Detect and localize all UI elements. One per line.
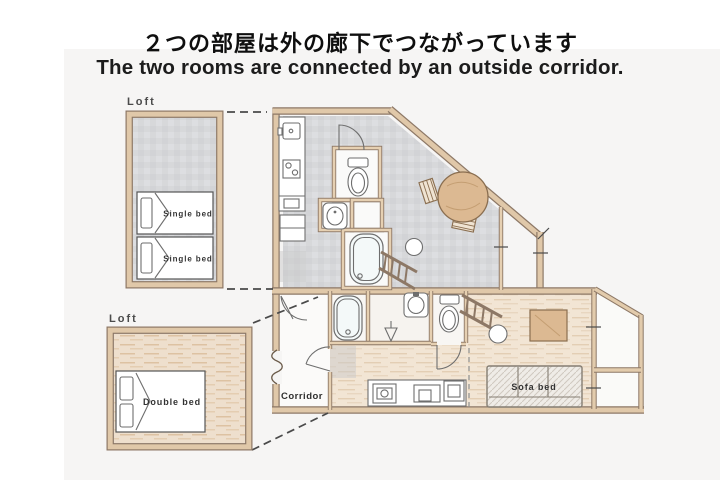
coffee-table	[530, 310, 567, 341]
connector-dash	[252, 413, 328, 450]
upper-loft-label: Loft	[127, 96, 156, 108]
storage-floor-upper	[352, 201, 380, 228]
washbasin-upper	[323, 203, 347, 229]
floor-mat-upper	[278, 251, 306, 282]
tap-dot	[334, 211, 337, 214]
double-bed: Double bed	[116, 371, 205, 432]
tap-icon	[413, 292, 419, 296]
bathtub-upper	[350, 234, 383, 284]
floor-mat-lower	[330, 346, 356, 378]
square-table-icon	[530, 310, 567, 341]
single-bed-2: Single bed	[137, 237, 213, 279]
lower-loft-label: Loft	[109, 313, 138, 325]
balcony-floor	[596, 291, 641, 408]
bathtub-icon	[350, 234, 383, 284]
single-bed-1: Single bed	[137, 192, 213, 234]
stool-icon	[406, 239, 423, 256]
toilet-tank-icon	[440, 295, 459, 304]
bathtub-lower	[334, 296, 362, 340]
floor-plan-page: ２つの部屋は外の廊下でつながっています The two rooms are co…	[0, 0, 720, 480]
faucet-icon	[278, 128, 282, 135]
kitchen-upper	[278, 117, 305, 241]
corridor-label: Corridor	[281, 391, 323, 402]
double-bed-label: Double bed	[143, 397, 201, 407]
wall-break-mask	[269, 351, 282, 384]
kitchenette-lower	[368, 380, 466, 406]
upper-loft-room: Single bed Single bed Loft	[127, 96, 220, 285]
lower-loft-room: Double bed Loft	[109, 313, 249, 447]
single-bed-label: Single bed	[163, 210, 212, 219]
stool-icon	[489, 325, 507, 343]
single-bed-label: Single bed	[163, 255, 212, 264]
round-table-icon	[438, 172, 488, 222]
floor-plan-drawing: Single bed Single bed Loft Double bed	[0, 0, 720, 480]
sofa-bed-label: Sofa bed	[511, 382, 556, 392]
toilet-tank-icon	[348, 158, 368, 167]
